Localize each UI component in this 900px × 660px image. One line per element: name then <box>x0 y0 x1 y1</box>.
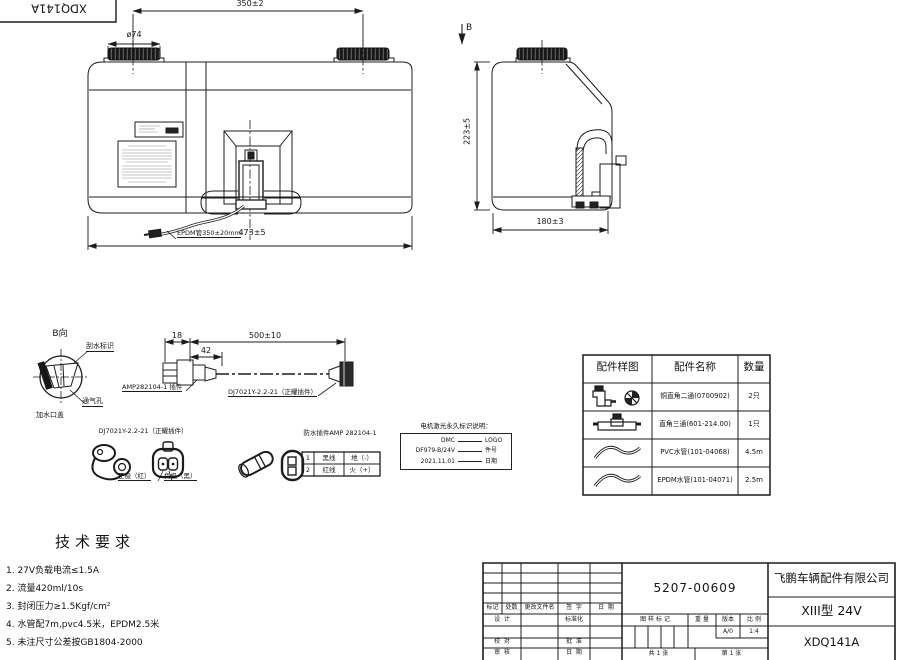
tb-version-value: A/0 <box>716 629 740 636</box>
tb-part-code: XDQ141A <box>768 636 895 649</box>
corner-part-code: XDQ141A <box>10 2 108 15</box>
amp-pin2-wire: 红线 <box>314 467 344 474</box>
tb-rev-sign: 签 字 <box>558 605 590 612</box>
tb-rev-docno: 更改文件名 <box>521 605 558 612</box>
laser-row-dmc: DMC LOGO <box>405 438 507 444</box>
tb-standardize: 标准化 <box>558 617 590 624</box>
amp-pin2-no: 2 <box>302 467 314 474</box>
laser-legend-title: 电机激光永久标识说明： <box>399 423 513 430</box>
laser-date-right: 日期 <box>485 459 507 465</box>
parts-row1-name: 铜直角二通(0700902) <box>652 393 738 400</box>
tech-req-item-2: 2. 流量420ml/10s <box>6 581 83 594</box>
laser-model-leader <box>458 451 482 452</box>
b-view-title: B向 <box>40 330 80 340</box>
tech-req-title: 技术要求 <box>40 534 150 551</box>
vent-hole-label: 通气孔 <box>82 398 103 407</box>
b-view-detail <box>33 349 89 405</box>
tb-sheet-total: 共 1 张 <box>622 651 695 658</box>
laser-model-right: 件号 <box>485 448 507 454</box>
tb-design: 设 计 <box>483 617 521 624</box>
tech-req-item-5: 5. 未注尺寸公差按GB1804-2000 <box>6 635 143 648</box>
amp-pin1-func: 地（-） <box>344 455 380 462</box>
drawing-linework <box>0 0 900 660</box>
amp-plug-callout: AMP282104-1 插件 <box>122 384 182 392</box>
parts-row1-qty: 2只 <box>738 393 770 401</box>
laser-model-left: DF979-B/24V <box>405 448 455 454</box>
dim-d74: ø74 <box>112 31 156 40</box>
tb-check: 校 对 <box>483 639 521 646</box>
parts-row3-name: PVC水管(101-04068) <box>652 449 738 456</box>
parts-header-name: 配件名称 <box>652 362 738 374</box>
tb-rev-date: 日 期 <box>590 605 622 612</box>
dim-42: 42 <box>192 347 220 356</box>
laser-legend-box: DMC LOGO DF979-B/24V 件号 2021.11.01 日期 <box>400 433 512 470</box>
dj-negative-label: 负极（黑） <box>164 473 197 481</box>
tb-approve: 批 准 <box>558 639 590 646</box>
parts-row3-qty: 4.5m <box>738 449 770 457</box>
tb-date: 日 期 <box>558 650 590 657</box>
laser-row-date: 2021.11.01 日期 <box>405 459 507 465</box>
tank-label-stickers <box>118 122 183 187</box>
tb-model: XIII型 24V <box>768 604 895 618</box>
tech-req-item-3: 3. 封闭压力≥1.5Kgf/cm² <box>6 599 110 612</box>
laser-row-model: DF979-B/24V 件号 <box>405 448 507 454</box>
dim-18: 18 <box>164 332 190 341</box>
tb-rev-mark: 标记 <box>483 605 502 612</box>
laser-date-left: 2021.11.01 <box>405 459 455 465</box>
wiper-symbol <box>38 362 78 390</box>
laser-date-leader <box>458 461 482 462</box>
filler-cap-label: 加水口盖 <box>36 412 64 420</box>
tb-review: 审 核 <box>483 650 521 657</box>
amp-detail-title: 防水插件AMP 282104-1 <box>294 430 386 437</box>
side-view-tank <box>474 40 626 234</box>
dim-473: 473±5 <box>224 229 280 238</box>
elbow-fitting-icon <box>593 386 639 406</box>
tb-weight: 重 量 <box>688 617 716 624</box>
parts-header-sample: 配件样图 <box>583 362 652 374</box>
parts-row4-name: EPDM水管(101-04071) <box>652 477 738 484</box>
tb-rev-count: 处数 <box>502 605 521 612</box>
dj-positive-label: 正极（红） <box>118 473 151 481</box>
amp-pin1-no: 1 <box>302 455 314 462</box>
dim-350: 350±2 <box>215 0 285 9</box>
dj-plug-callout: DJ7021Y-2.2-21（正耀插件） <box>228 389 317 397</box>
dim-180: 180±3 <box>522 218 578 227</box>
parts-row2-qty: 1只 <box>738 421 770 429</box>
dim-500: 500±10 <box>234 332 296 341</box>
tb-mark-header: 图 样 标 记 <box>622 617 688 624</box>
parts-row2-name: 直角三通(601-214.00) <box>652 421 738 428</box>
wiper-mark-label: 刮水标识 <box>86 343 114 352</box>
laser-dmc-left: DMC <box>405 438 455 444</box>
parts-row4-qty: 2.5m <box>738 477 770 485</box>
laser-dmc-leader <box>458 441 482 442</box>
pvc-hose-icon <box>595 447 640 458</box>
tb-version: 版本 <box>716 617 740 624</box>
tb-sheet-number: 第 1 张 <box>695 651 768 658</box>
tech-req-item-4: 4. 水管配7m,pvc4.5米，EPDM2.5米 <box>6 617 159 630</box>
amp-pin1-wire: 黑线 <box>314 455 344 462</box>
parts-header-qty: 数量 <box>738 362 770 374</box>
dim-223: 223±5 <box>464 111 473 151</box>
tech-req-item-1: 1. 27V负载电流≤1.5A <box>6 563 99 576</box>
view-b-arrow-label: B <box>466 24 472 34</box>
side-pump-assembly <box>572 130 626 208</box>
front-view-tank <box>88 11 462 250</box>
laser-dmc-right: LOGO <box>485 438 507 444</box>
dj-detail-title: DJ7021Y-2.2-21（正耀插件） <box>82 428 204 435</box>
tb-scale: 比 例 <box>740 617 768 624</box>
drawing-sheet: XDQ141A 350±2 ø74 B EPDM管350±20mm 473±5 … <box>0 0 900 660</box>
tb-scale-value: 1:4 <box>740 629 768 636</box>
amp-pin2-func: 火（+） <box>344 467 380 474</box>
tee-fitting-icon <box>593 414 641 430</box>
epdm-hose-icon <box>595 475 640 486</box>
tb-company-name: 飞鹏车辆配件有限公司 <box>768 572 895 585</box>
tb-drawing-number: 5207-00609 <box>622 582 768 595</box>
